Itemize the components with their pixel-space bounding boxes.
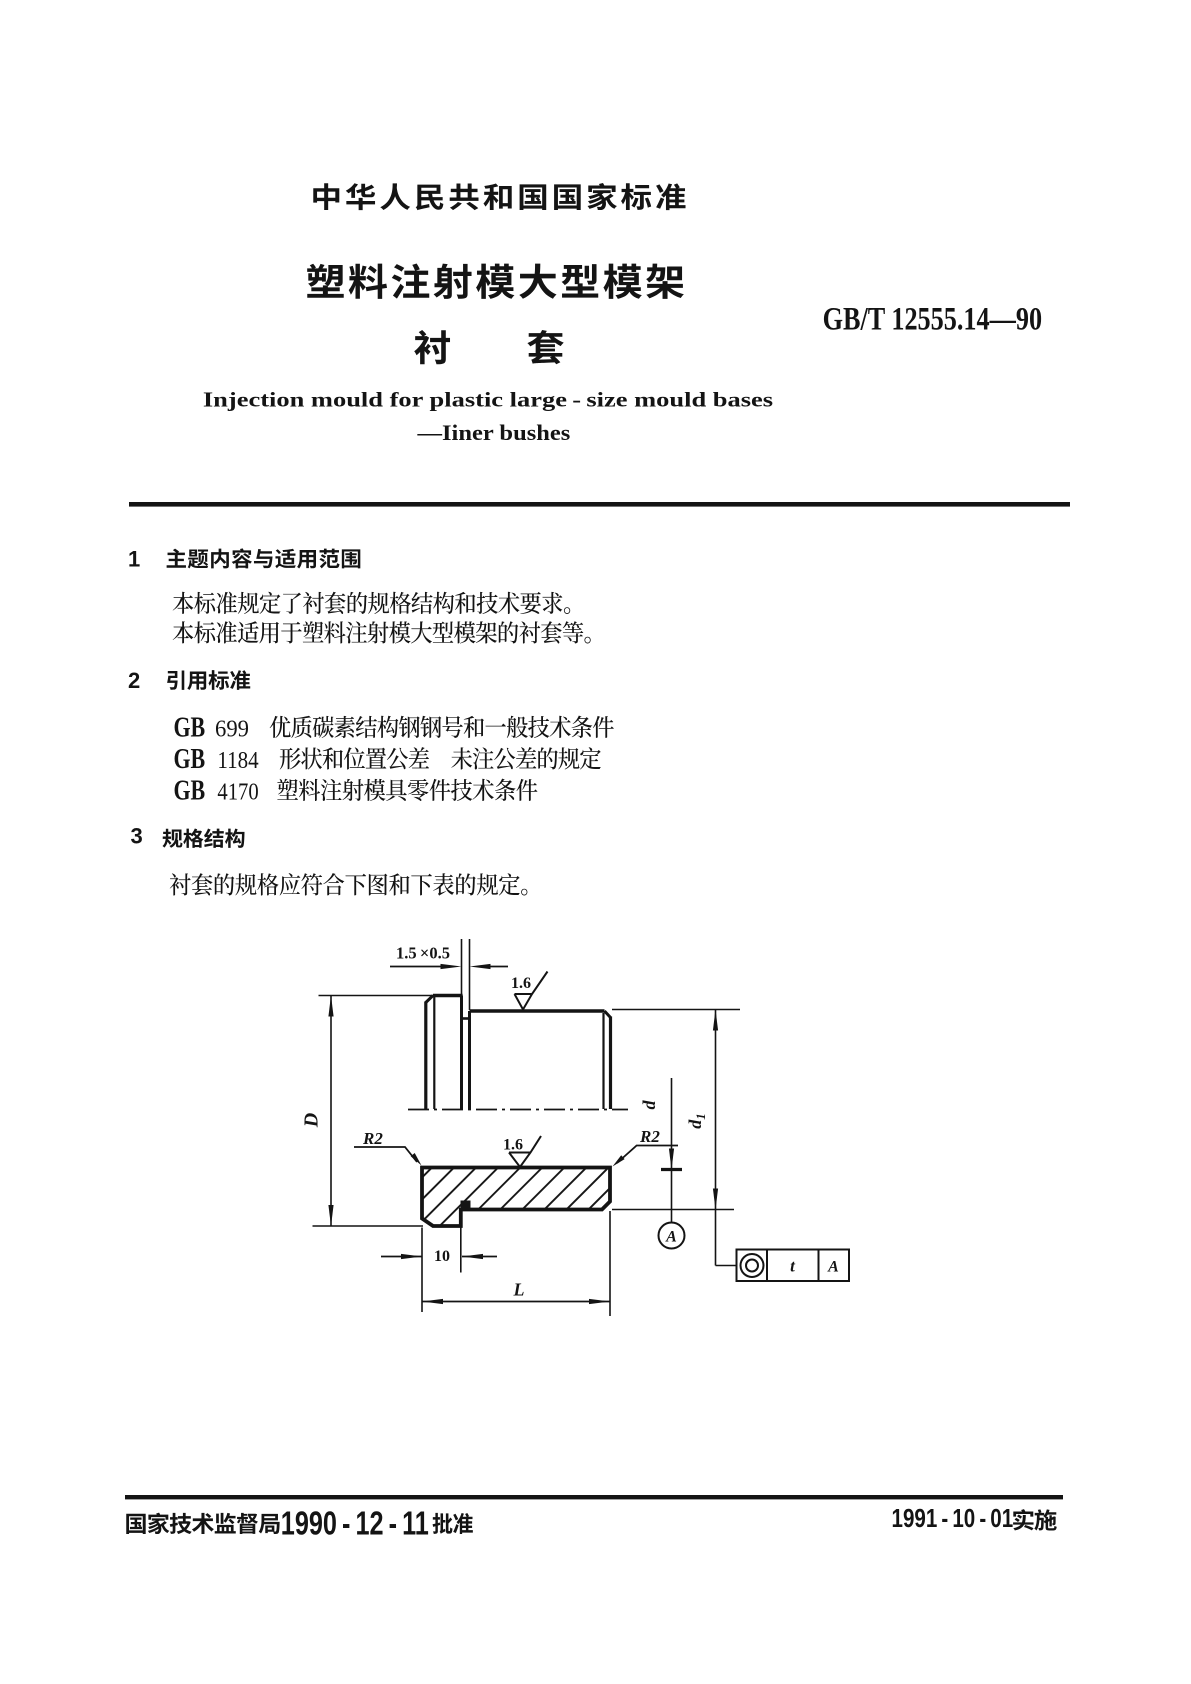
svg-text:GB: GB — [174, 744, 206, 775]
svg-text:1: 1 — [128, 547, 140, 572]
svg-text:3: 3 — [131, 824, 143, 849]
svg-text:GB/T 12555.14—90: GB/T 12555.14—90 — [823, 302, 1043, 338]
svg-text:L: L — [513, 1280, 525, 1300]
svg-text:1991 - 10 - 01: 1991 - 10 - 01 — [892, 1503, 1014, 1533]
svg-text:A: A — [827, 1259, 839, 1276]
svg-text:A: A — [665, 1229, 677, 1246]
svg-text:699: 699 — [215, 717, 249, 743]
svg-text:D: D — [301, 1113, 323, 1128]
svg-text:10: 10 — [434, 1248, 450, 1265]
svg-text:d: d — [639, 1100, 659, 1110]
svg-text:1.5 ×0.5: 1.5 ×0.5 — [396, 944, 450, 963]
svg-text:R2: R2 — [362, 1129, 383, 1148]
svg-text:—Iiner bushes: —Iiner bushes — [416, 420, 570, 445]
svg-text:Injection mould for plastic la: Injection mould for plastic large - size… — [203, 388, 773, 412]
svg-text:1184: 1184 — [217, 748, 258, 774]
svg-text:R2: R2 — [639, 1127, 660, 1146]
svg-text:2: 2 — [128, 668, 140, 693]
svg-text:GB: GB — [174, 776, 206, 807]
svg-text:1990 - 12 - 11: 1990 - 12 - 11 — [281, 1505, 429, 1542]
svg-text:4170: 4170 — [217, 780, 258, 806]
svg-text:GB: GB — [174, 713, 206, 744]
svg-text:1.6: 1.6 — [503, 1137, 523, 1154]
svg-text:1.6: 1.6 — [511, 975, 531, 992]
